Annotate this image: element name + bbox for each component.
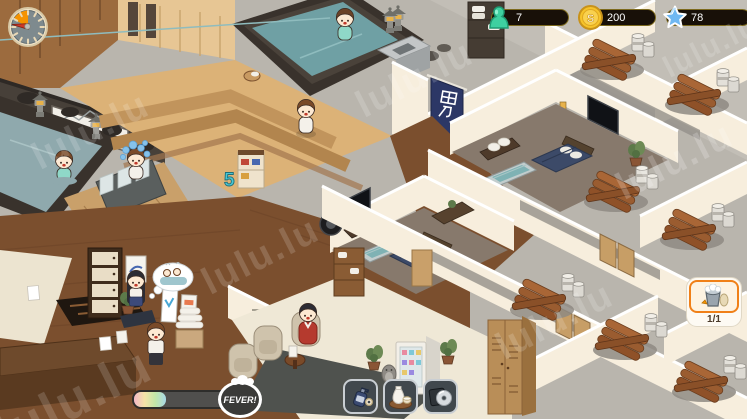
cd-record-icon [427,383,454,410]
guest-counter[interactable]: 7 [491,9,569,26]
level-number: 5 [224,170,235,191]
shoe-locker [334,248,364,296]
coin-counter[interactable]: S 200 [582,9,656,26]
steam-cloud-icon [231,375,255,385]
guest-count-value: 7 [516,12,522,24]
svg-text:S: S [587,13,594,25]
fever-label: FEVER! [223,395,256,405]
shampoo-item-button[interactable] [343,379,378,414]
guest-in-red-robe[interactable] [299,303,317,344]
task-count-label: 1/1 [689,313,739,326]
guest-at-rooftop-bath[interactable] [336,8,353,40]
milk-item-button[interactable] [383,379,418,414]
cd-item-button[interactable] [423,379,458,414]
star-count-value: 78 [691,12,703,24]
mini-shelf[interactable] [238,150,264,188]
game-screen: 5 [0,0,747,419]
guest-pawn-icon [486,4,512,32]
star-counter[interactable]: 78 [666,9,747,26]
fever-gauge: FEVER! [132,390,250,409]
coin-count-value: 200 [607,12,625,24]
consumable-item-bar [343,379,458,414]
cleaning-task-button[interactable]: 1/1 [686,277,742,327]
side-cabinet [412,250,432,286]
coin-icon: S [577,4,604,31]
garden-rock [437,44,451,52]
cleaning-bucket-icon [699,284,729,310]
star-icon [661,4,689,32]
compass-timer[interactable] [5,4,51,50]
milk-set-icon [387,383,414,410]
fever-badge[interactable]: FEVER! [218,381,262,418]
shampoo-bottle-icon [348,384,374,410]
fever-gauge-fill [134,392,166,407]
wood-locker-cabinet [488,316,536,416]
receptionist[interactable] [147,322,164,365]
isometric-scene: 5 [0,0,747,419]
